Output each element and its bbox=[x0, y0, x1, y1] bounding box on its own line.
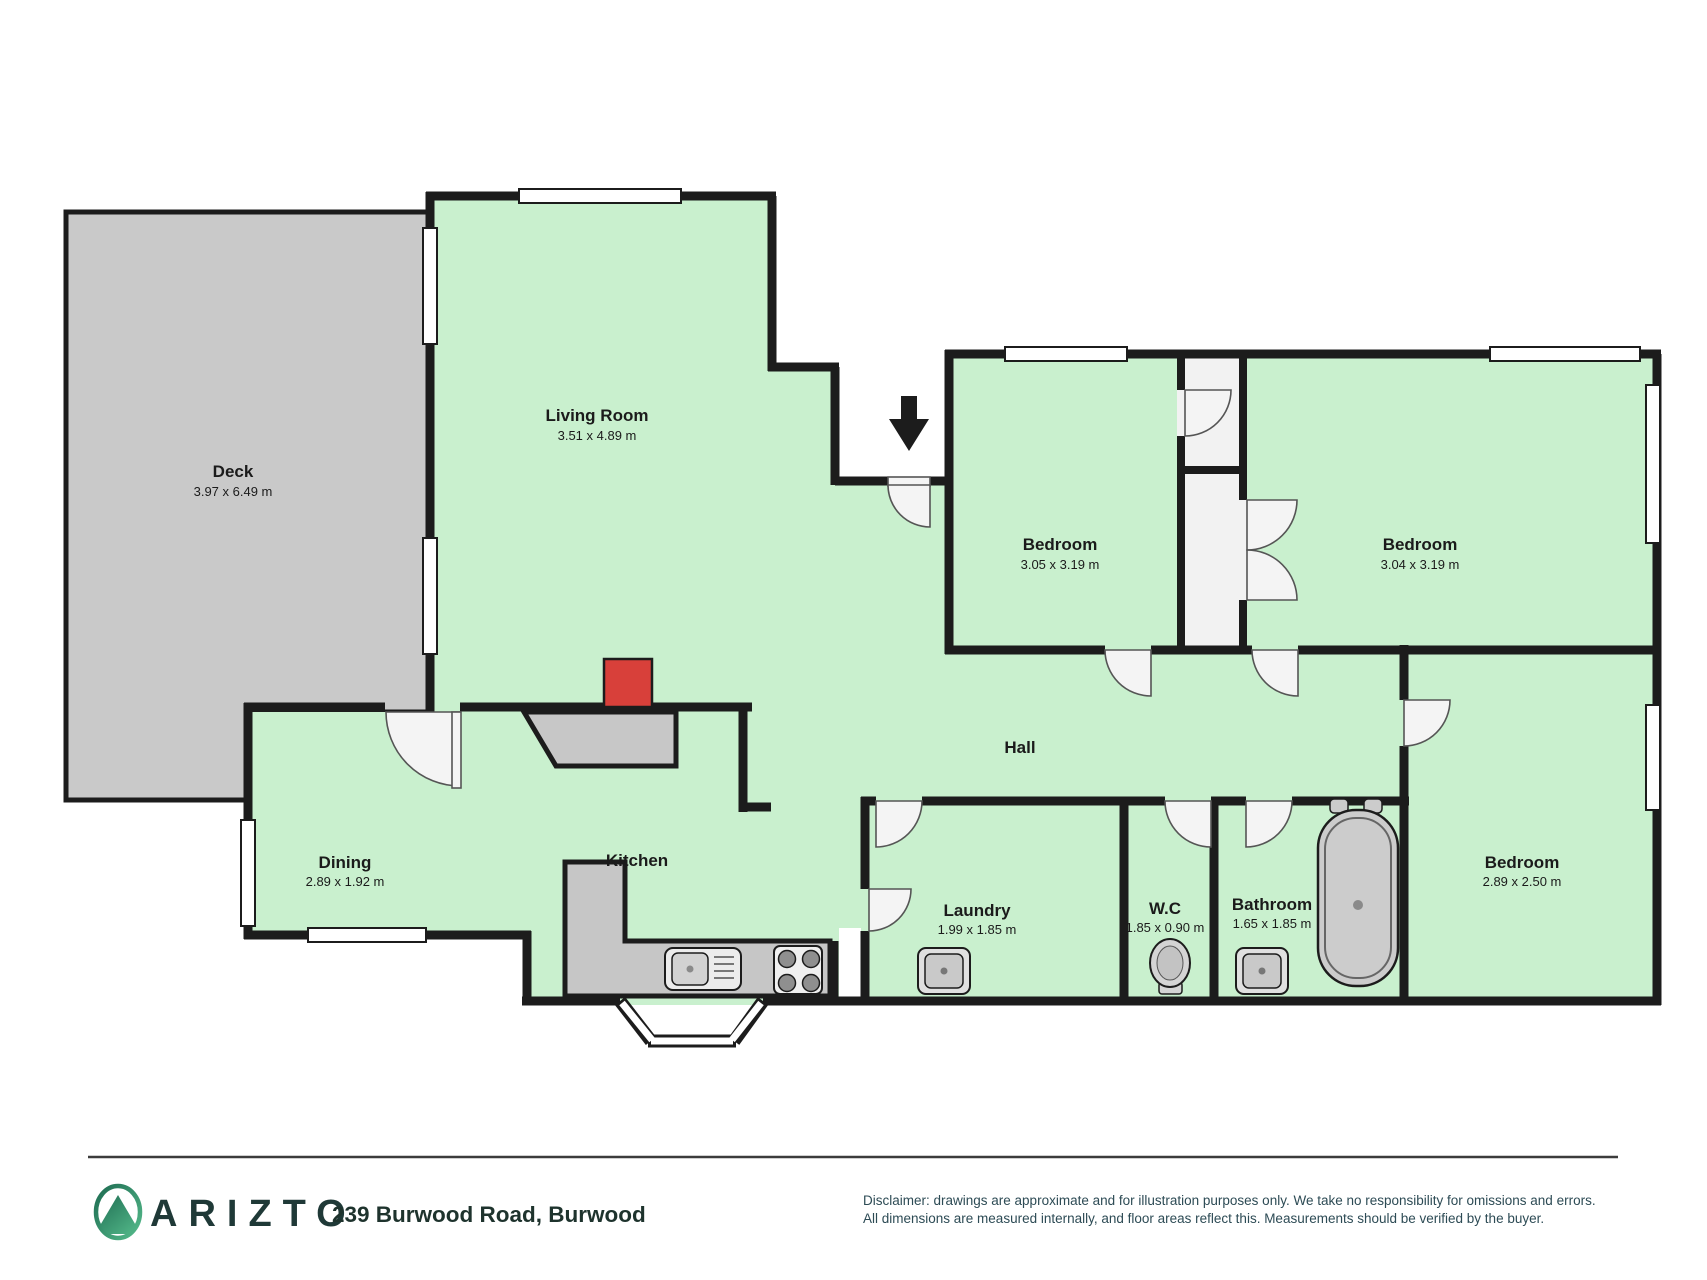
svg-text:Laundry: Laundry bbox=[943, 901, 1011, 920]
window-dining-bottom bbox=[308, 928, 426, 942]
room-label-laundry: Laundry 1.99 x 1.85 m bbox=[938, 901, 1017, 937]
svg-text:Hall: Hall bbox=[1004, 738, 1035, 757]
bathroom-sink-icon bbox=[1236, 948, 1288, 994]
arizto-logo-icon bbox=[95, 1186, 141, 1238]
stove-icon bbox=[774, 946, 822, 994]
window-bedroom1-top bbox=[1005, 347, 1127, 361]
svg-text:1.85 x 0.90 m: 1.85 x 0.90 m bbox=[1126, 920, 1205, 935]
disclaimer-line2: All dimensions are measured internally, … bbox=[863, 1211, 1544, 1226]
svg-text:3.97 x 6.49 m: 3.97 x 6.49 m bbox=[194, 484, 273, 499]
svg-text:2.89 x 1.92 m: 2.89 x 1.92 m bbox=[306, 874, 385, 889]
svg-text:3.04 x 3.19 m: 3.04 x 3.19 m bbox=[1381, 557, 1460, 572]
svg-text:2.89 x 2.50 m: 2.89 x 2.50 m bbox=[1483, 874, 1562, 889]
room-label-kitchen: Kitchen bbox=[606, 851, 668, 870]
window-bedroom2-right bbox=[1646, 385, 1660, 543]
svg-text:3.51 x 4.89 m: 3.51 x 4.89 m bbox=[558, 428, 637, 443]
svg-text:1.99 x 1.85 m: 1.99 x 1.85 m bbox=[938, 922, 1017, 937]
room-label-living: Living Room 3.51 x 4.89 m bbox=[546, 406, 649, 443]
brand-name: ARIZTO bbox=[150, 1193, 357, 1235]
svg-text:Kitchen: Kitchen bbox=[606, 851, 668, 870]
svg-text:Bedroom: Bedroom bbox=[1383, 535, 1458, 554]
svg-text:W.C: W.C bbox=[1149, 899, 1181, 918]
svg-text:3.05 x 3.19 m: 3.05 x 3.19 m bbox=[1021, 557, 1100, 572]
window-living-top bbox=[519, 189, 681, 203]
room-label-bedroom2: Bedroom 3.04 x 3.19 m bbox=[1381, 535, 1460, 572]
laundry-sink-icon bbox=[918, 948, 970, 994]
window-dining-left bbox=[241, 820, 255, 926]
bathtub-icon bbox=[1318, 799, 1398, 986]
window-deck-lower bbox=[423, 538, 437, 654]
svg-text:Bedroom: Bedroom bbox=[1485, 853, 1560, 872]
window-bedroom3-right bbox=[1646, 705, 1660, 810]
svg-text:Living Room: Living Room bbox=[546, 406, 649, 425]
fireplace-icon bbox=[604, 659, 652, 707]
svg-text:Deck: Deck bbox=[213, 462, 254, 481]
svg-text:1.65 x 1.85 m: 1.65 x 1.85 m bbox=[1233, 916, 1312, 931]
floorplan-canvas: Deck 3.97 x 6.49 m Living Room 3.51 x 4.… bbox=[0, 0, 1707, 1280]
kitchen-laundry-recess bbox=[839, 928, 861, 1001]
svg-text:Dining: Dining bbox=[319, 853, 372, 872]
svg-text:Bathroom: Bathroom bbox=[1232, 895, 1312, 914]
room-label-bedroom1: Bedroom 3.05 x 3.19 m bbox=[1021, 535, 1100, 572]
window-deck-upper bbox=[423, 228, 437, 344]
room-label-bathroom: Bathroom 1.65 x 1.85 m bbox=[1232, 895, 1312, 931]
deck-dining-door-leaf bbox=[452, 712, 461, 788]
property-address: 239 Burwood Road, Burwood bbox=[332, 1202, 646, 1227]
window-bedroom2-top bbox=[1490, 347, 1640, 361]
disclaimer-line1: Disclaimer: drawings are approximate and… bbox=[863, 1193, 1596, 1208]
room-label-bedroom3: Bedroom 2.89 x 2.50 m bbox=[1483, 853, 1562, 889]
room-label-hall: Hall bbox=[1004, 738, 1035, 757]
kitchen-sink-icon bbox=[665, 948, 741, 990]
svg-text:Bedroom: Bedroom bbox=[1023, 535, 1098, 554]
